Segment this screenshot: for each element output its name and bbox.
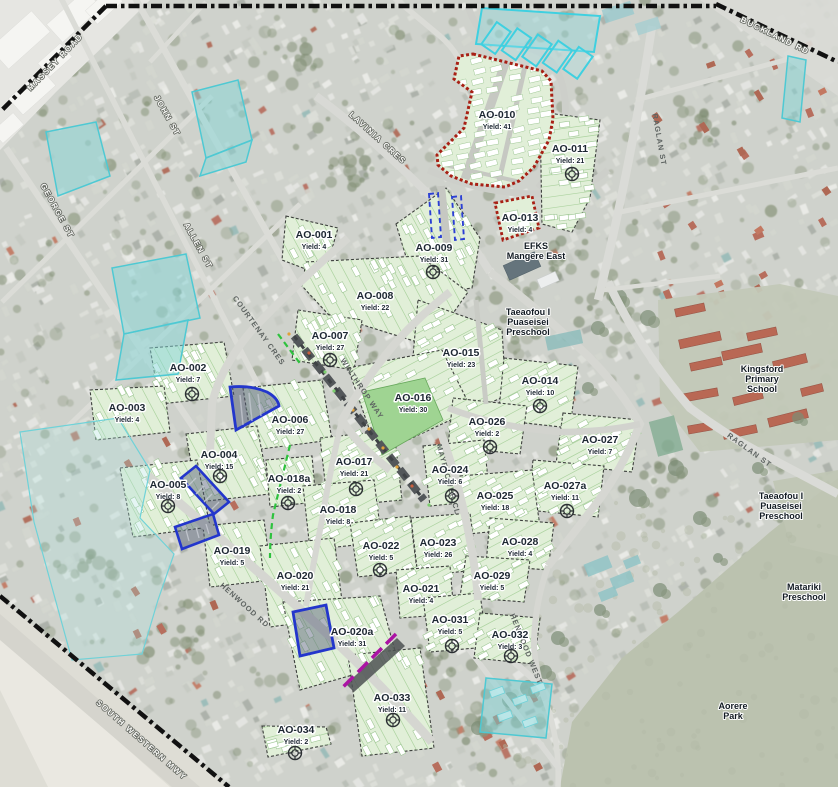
svg-text:Taeaofou I: Taeaofou I	[759, 491, 803, 501]
svg-text:AO-021: AO-021	[403, 583, 440, 595]
svg-text:AO-003: AO-003	[109, 402, 146, 414]
svg-text:Aorere: Aorere	[718, 701, 747, 711]
svg-text:AO-032: AO-032	[492, 629, 529, 641]
svg-text:Preschool: Preschool	[759, 511, 803, 521]
svg-text:Mangere East: Mangere East	[507, 251, 566, 261]
svg-text:AO-007: AO-007	[312, 330, 349, 342]
svg-text:School: School	[747, 384, 777, 394]
svg-text:Preschool: Preschool	[782, 592, 826, 602]
svg-text:Yield: 30: Yield: 30	[399, 407, 428, 414]
svg-text:AO-009: AO-009	[416, 242, 453, 254]
svg-text:AO-014: AO-014	[522, 375, 559, 387]
svg-text:AO-002: AO-002	[170, 362, 207, 374]
svg-text:Yield: 5: Yield: 5	[369, 555, 394, 562]
svg-text:AO-018a: AO-018a	[268, 473, 311, 485]
svg-text:Yield: 4: Yield: 4	[508, 227, 533, 234]
svg-text:Yield: 22: Yield: 22	[361, 305, 390, 312]
svg-text:AO-023: AO-023	[420, 537, 457, 549]
svg-text:Yield: 23: Yield: 23	[447, 362, 476, 369]
svg-text:AO-001: AO-001	[296, 229, 333, 241]
svg-text:AO-017: AO-017	[336, 456, 373, 468]
svg-text:Yield: 2: Yield: 2	[284, 739, 309, 746]
svg-text:Yield: 7: Yield: 7	[588, 449, 613, 456]
svg-text:AO-025: AO-025	[477, 490, 514, 502]
svg-text:Yield: 5: Yield: 5	[220, 560, 245, 567]
svg-text:Yield: 31: Yield: 31	[338, 641, 367, 648]
svg-text:Yield: 10: Yield: 10	[526, 390, 555, 397]
svg-text:Yield: 6: Yield: 6	[438, 479, 463, 486]
svg-text:AO-011: AO-011	[552, 143, 588, 155]
svg-text:Yield: 7: Yield: 7	[176, 377, 201, 384]
svg-text:AO-027a: AO-027a	[544, 480, 587, 492]
svg-text:Yield: 18: Yield: 18	[481, 505, 510, 512]
svg-text:AO-029: AO-029	[474, 570, 511, 582]
svg-text:Yield: 21: Yield: 21	[340, 471, 369, 478]
svg-text:Yield: 5: Yield: 5	[480, 585, 505, 592]
svg-text:Kingsford: Kingsford	[741, 364, 784, 374]
svg-text:AO-034: AO-034	[278, 724, 315, 736]
svg-text:Yield: 5: Yield: 5	[438, 629, 463, 636]
svg-text:Puaseisei: Puaseisei	[507, 317, 549, 327]
svg-text:AO-005: AO-005	[150, 479, 187, 491]
svg-text:AO-018: AO-018	[320, 504, 357, 516]
svg-text:AO-019: AO-019	[214, 545, 251, 557]
svg-text:Yield: 11: Yield: 11	[551, 495, 579, 502]
svg-text:AO-031: AO-031	[432, 614, 469, 626]
svg-text:AO-004: AO-004	[201, 449, 238, 461]
svg-text:Primary: Primary	[745, 374, 779, 384]
svg-text:Taeaofou I: Taeaofou I	[506, 307, 550, 317]
svg-text:Park: Park	[723, 711, 744, 721]
svg-text:AO-016: AO-016	[395, 392, 432, 404]
svg-text:AO-010: AO-010	[479, 109, 516, 121]
svg-text:AO-022: AO-022	[363, 540, 400, 552]
svg-text:Yield: 31: Yield: 31	[420, 257, 449, 264]
svg-text:Puaseisei: Puaseisei	[760, 501, 802, 511]
svg-text:Preschool: Preschool	[506, 327, 550, 337]
svg-text:AO-028: AO-028	[502, 536, 539, 548]
svg-text:Yield: 41: Yield: 41	[483, 124, 512, 131]
svg-text:AO-027: AO-027	[582, 434, 619, 446]
svg-text:AO-015: AO-015	[443, 347, 480, 359]
svg-text:Yield: 27: Yield: 27	[316, 345, 345, 352]
svg-text:AO-020a: AO-020a	[331, 626, 374, 638]
svg-text:AO-033: AO-033	[374, 692, 411, 704]
svg-text:AO-020: AO-020	[277, 570, 314, 582]
svg-text:AO-006: AO-006	[272, 414, 309, 426]
svg-text:Yield: 4: Yield: 4	[409, 598, 434, 605]
svg-text:Matariki: Matariki	[787, 582, 821, 592]
svg-text:Yield: 4: Yield: 4	[302, 244, 327, 251]
svg-text:Yield: 21: Yield: 21	[556, 158, 585, 165]
svg-text:Yield: 4: Yield: 4	[508, 551, 533, 558]
svg-text:Yield: 27: Yield: 27	[276, 429, 305, 436]
svg-text:EFKS: EFKS	[524, 241, 548, 251]
svg-text:Yield: 8: Yield: 8	[326, 519, 351, 526]
svg-text:AO-026: AO-026	[469, 416, 506, 428]
svg-text:AO-013: AO-013	[502, 212, 539, 224]
svg-text:Yield: 26: Yield: 26	[424, 552, 453, 559]
svg-text:Yield: 2: Yield: 2	[277, 488, 302, 495]
svg-text:Yield: 21: Yield: 21	[281, 585, 310, 592]
svg-text:Yield: 4: Yield: 4	[115, 417, 140, 424]
svg-text:Yield: 2: Yield: 2	[475, 431, 500, 438]
svg-text:AO-024: AO-024	[432, 464, 469, 476]
svg-text:AO-008: AO-008	[357, 290, 394, 302]
